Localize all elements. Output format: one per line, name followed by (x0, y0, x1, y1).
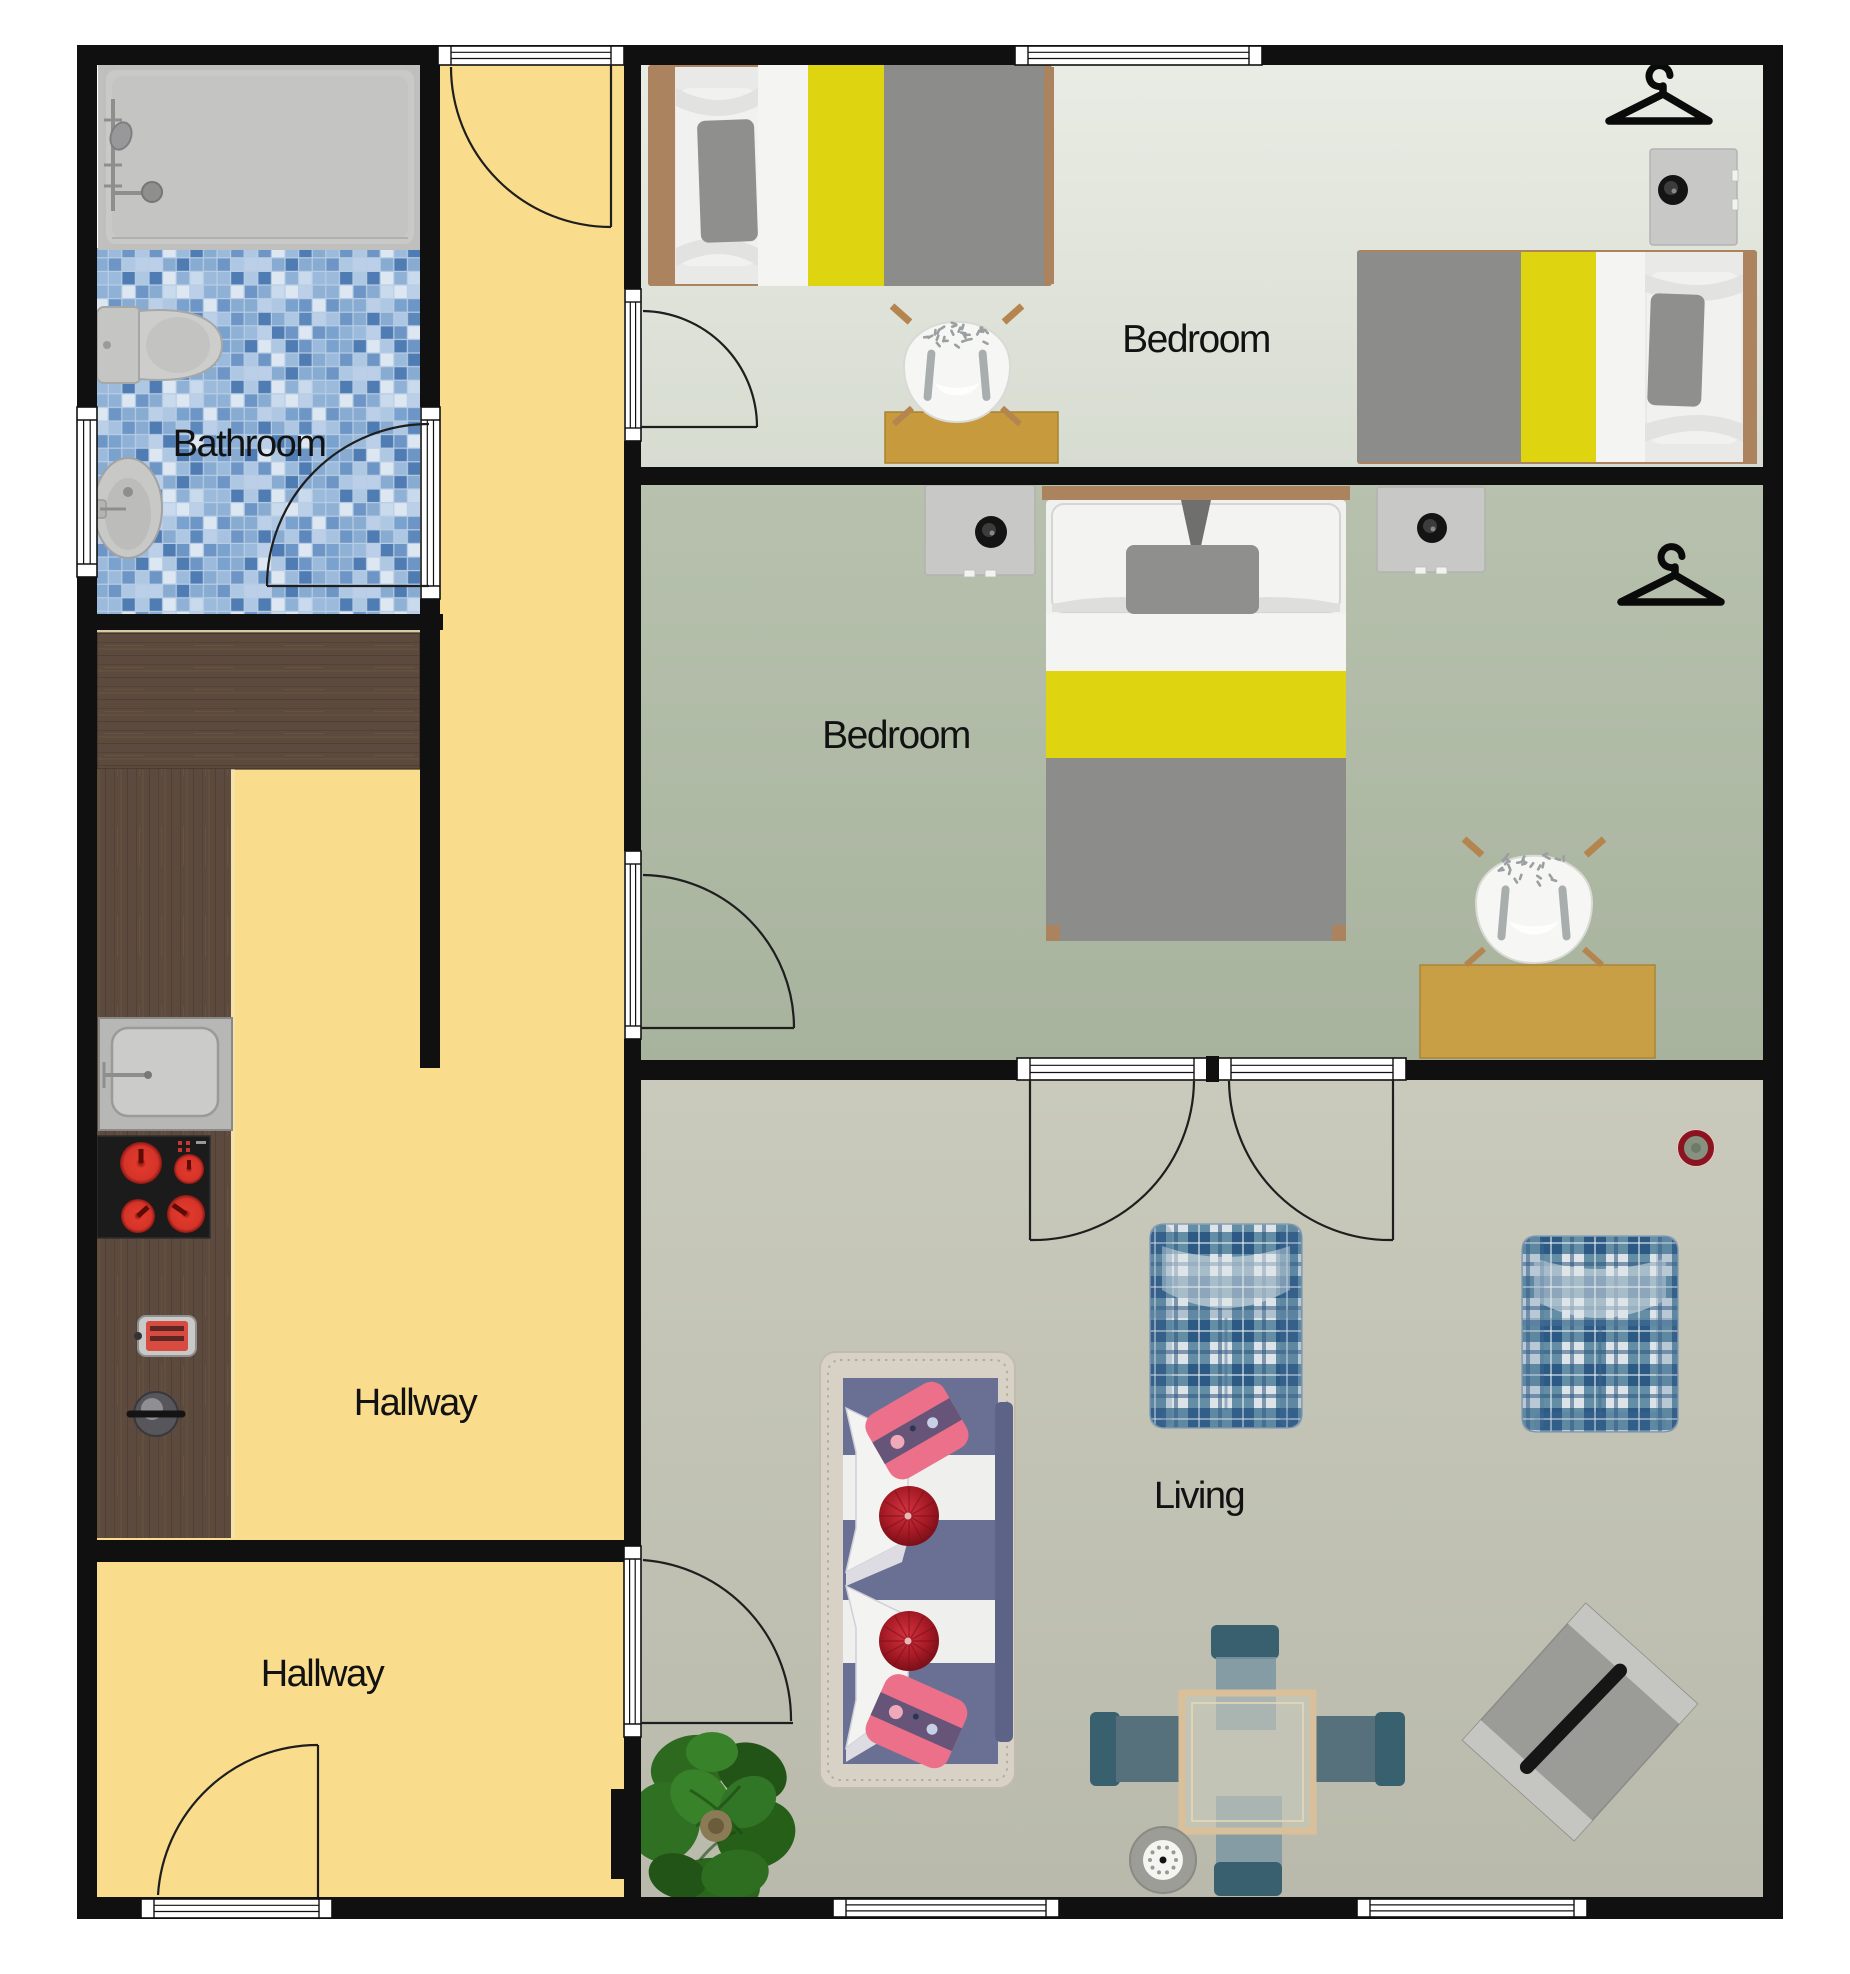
svg-text:Living: Living (1154, 1475, 1244, 1517)
svg-text:Hallway: Hallway (354, 1382, 478, 1424)
svg-text:Hallway: Hallway (261, 1653, 385, 1695)
svg-text:Bathroom: Bathroom (173, 423, 326, 465)
svg-text:Bedroom: Bedroom (822, 714, 970, 757)
svg-text:Bedroom: Bedroom (1122, 318, 1270, 361)
